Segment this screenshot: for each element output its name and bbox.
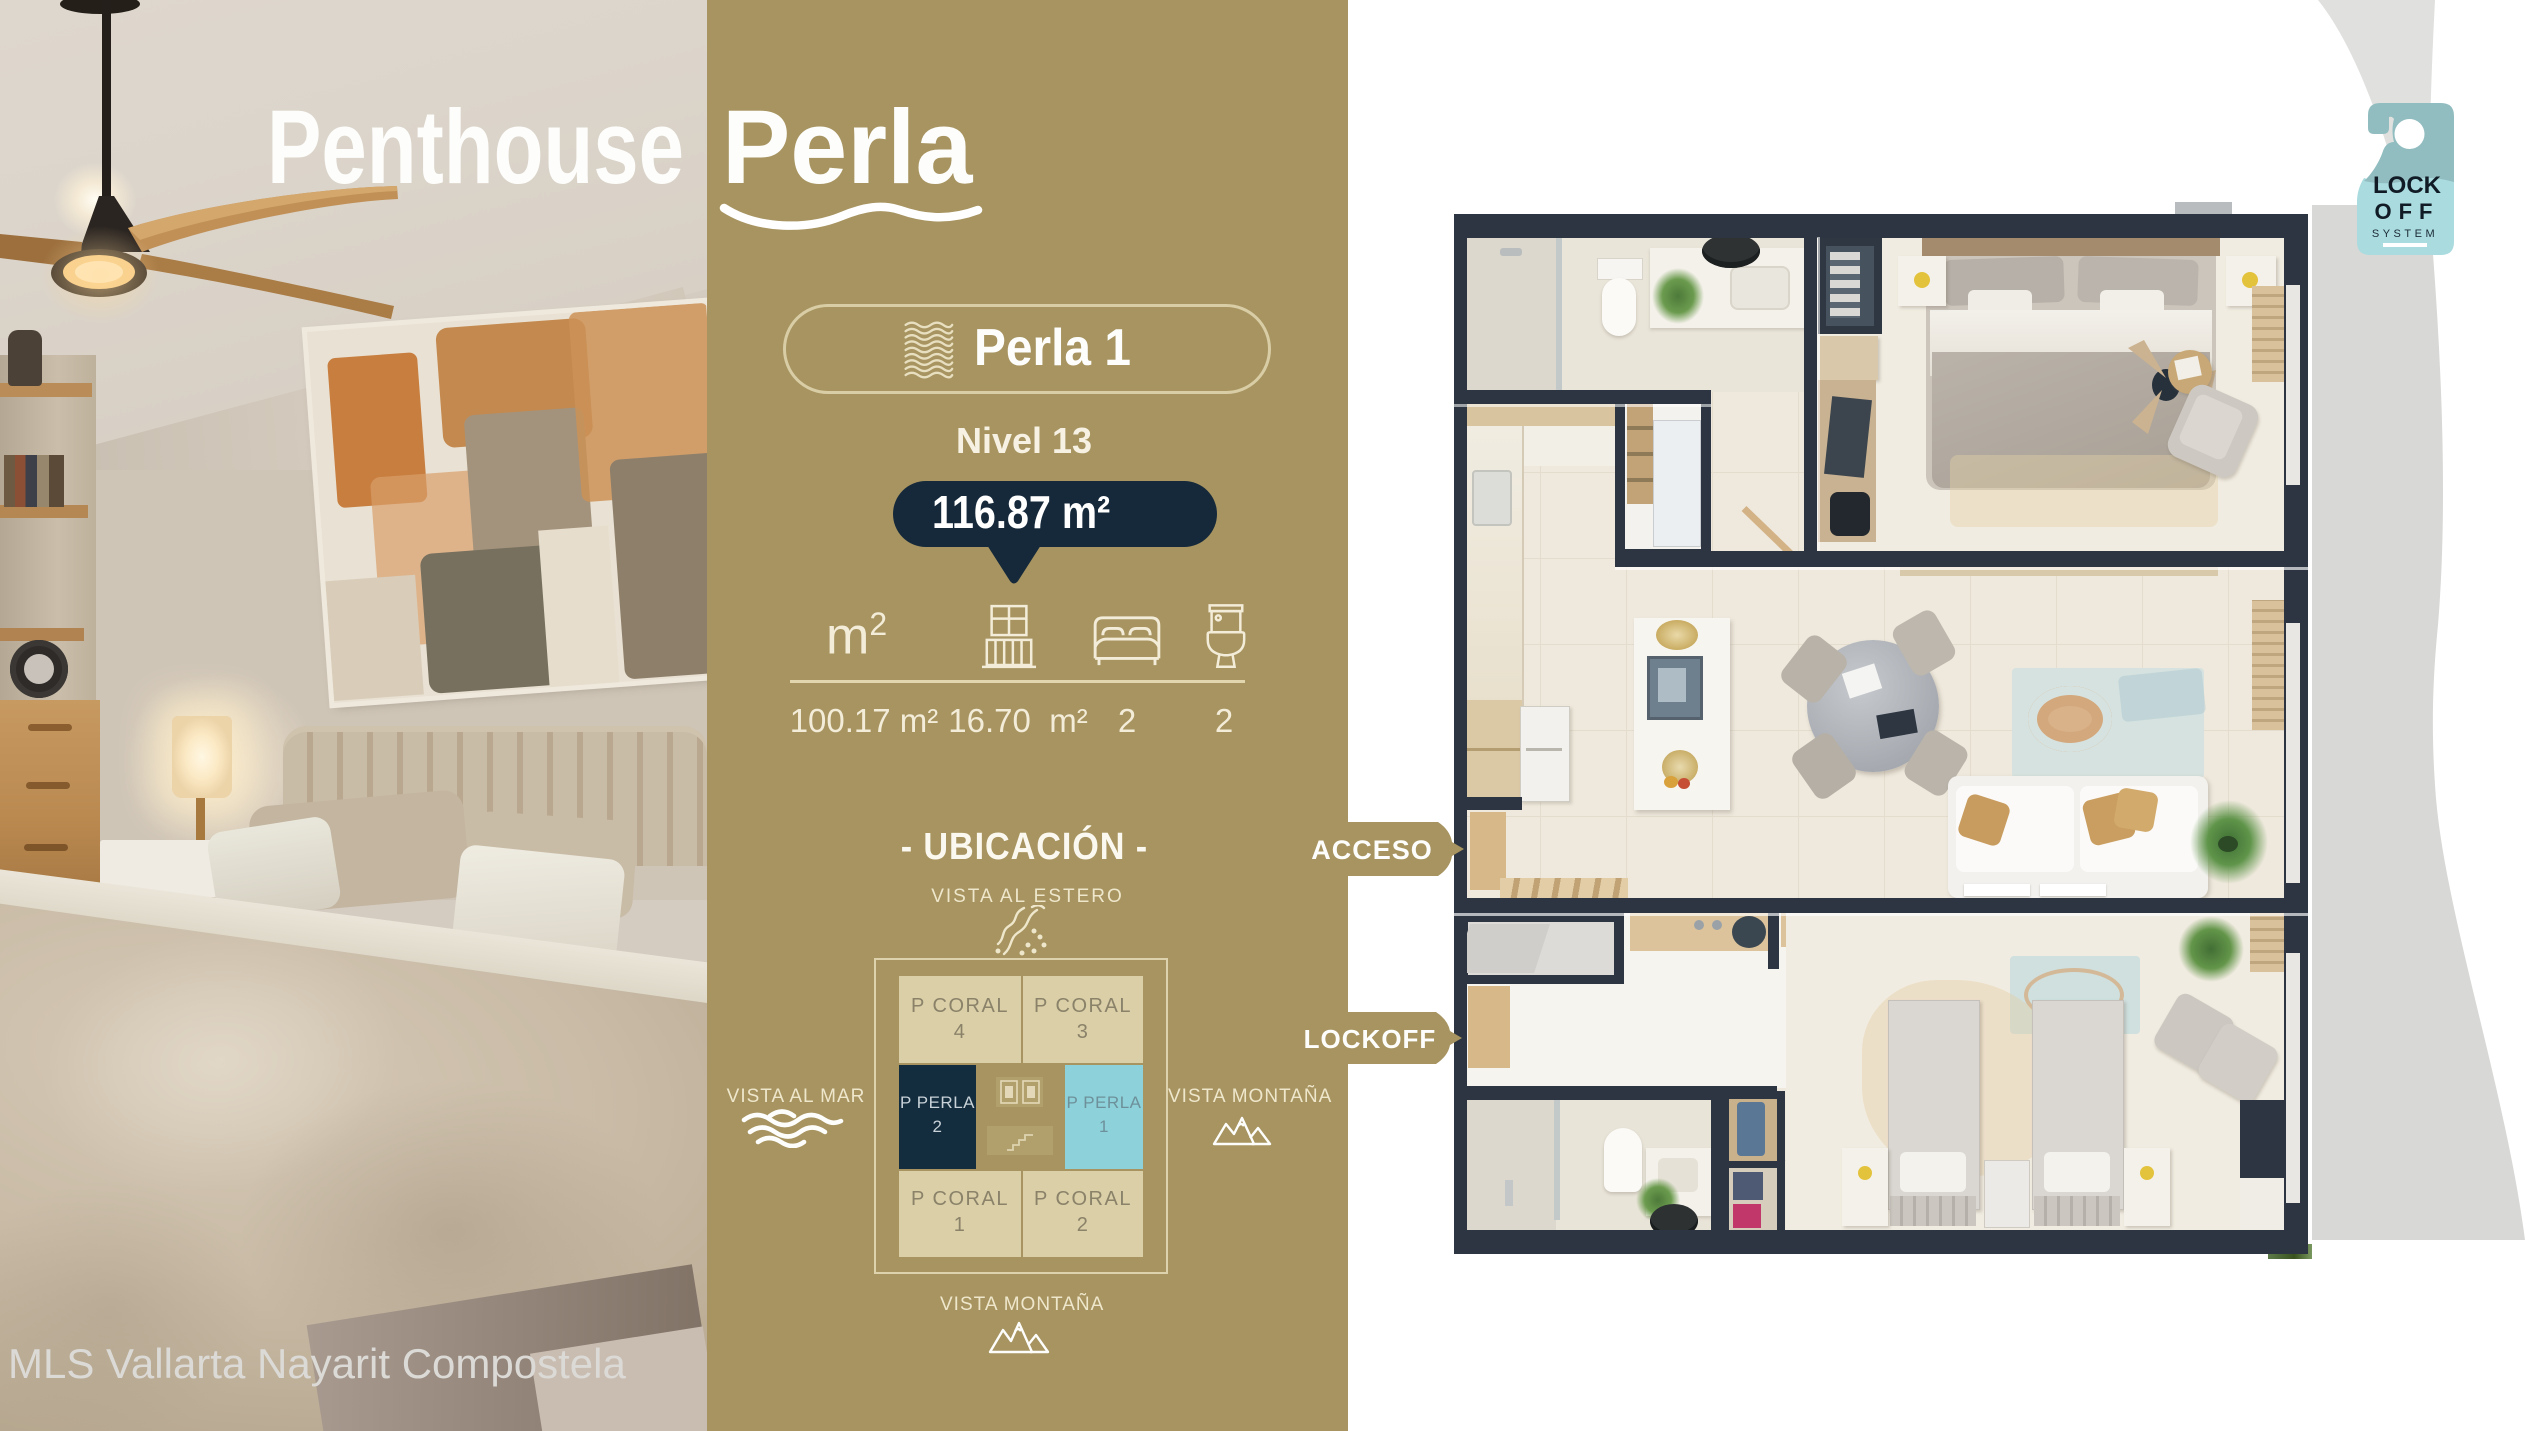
svg-text:LOCKOFF: LOCKOFF [1304,1024,1437,1054]
svg-text:OFF: OFF [2375,199,2440,224]
svg-text:ACCESO: ACCESO [1311,835,1433,865]
svg-text:SYSTEM: SYSTEM [2372,228,2438,240]
svg-text:LOCK: LOCK [2373,172,2442,199]
